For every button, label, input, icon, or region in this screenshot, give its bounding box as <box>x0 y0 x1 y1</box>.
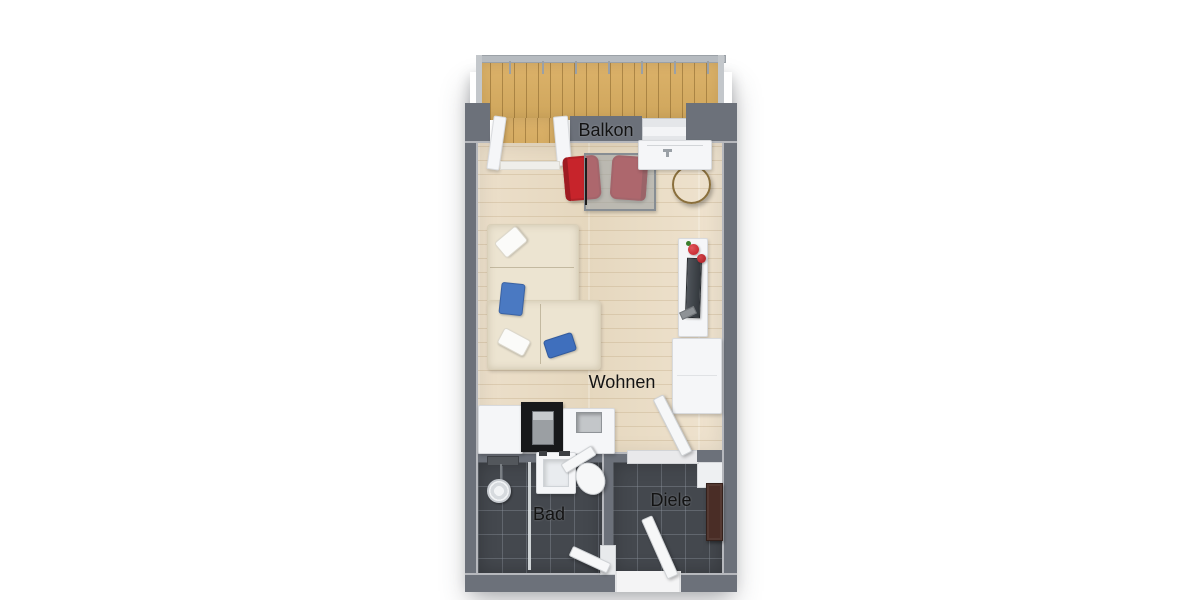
round-side-table <box>672 165 711 204</box>
hallway-cabinet <box>706 483 723 541</box>
balcony-door-threshold <box>500 161 560 170</box>
faucet-icon <box>559 451 570 456</box>
outer-wall-left <box>465 103 478 592</box>
floor-lamp <box>585 158 587 205</box>
floorplan-canvas: Balkon Wohnen Bad Diele <box>0 0 1200 600</box>
room-label-balkon: Balkon <box>578 121 633 139</box>
sofa-pillow-blue <box>498 282 525 316</box>
kitchen-sink-counter <box>638 140 712 170</box>
wall-living-hall-right <box>697 450 722 462</box>
room-label-bad: Bad <box>533 505 565 523</box>
shower-glass-partition <box>528 462 531 570</box>
outer-wall-bottom <box>465 573 737 592</box>
decor-red-vase <box>697 254 706 263</box>
sofa-seam <box>490 267 574 268</box>
top-wall-left-corner <box>465 103 490 143</box>
wall-bath-hall <box>602 452 613 548</box>
shower-fitting <box>487 456 519 466</box>
kitchenette-counter <box>478 405 523 454</box>
faucet-icon <box>666 149 669 157</box>
balcony-railing-posts <box>476 61 724 74</box>
room-label-diele: Diele <box>650 491 691 509</box>
outer-wall-right <box>722 103 737 592</box>
shower-hose <box>500 464 502 480</box>
faucet-icon <box>539 451 547 456</box>
oven-cabinet <box>521 402 563 452</box>
sink-basin <box>576 412 602 433</box>
wardrobe <box>672 338 722 414</box>
room-label-wohnen: Wohnen <box>589 373 656 391</box>
sofa-seam <box>540 304 541 364</box>
shower-head-icon <box>487 479 511 503</box>
decor-red-vase <box>688 244 699 255</box>
oven-icon <box>532 411 554 445</box>
top-wall-right-corner <box>686 103 737 143</box>
